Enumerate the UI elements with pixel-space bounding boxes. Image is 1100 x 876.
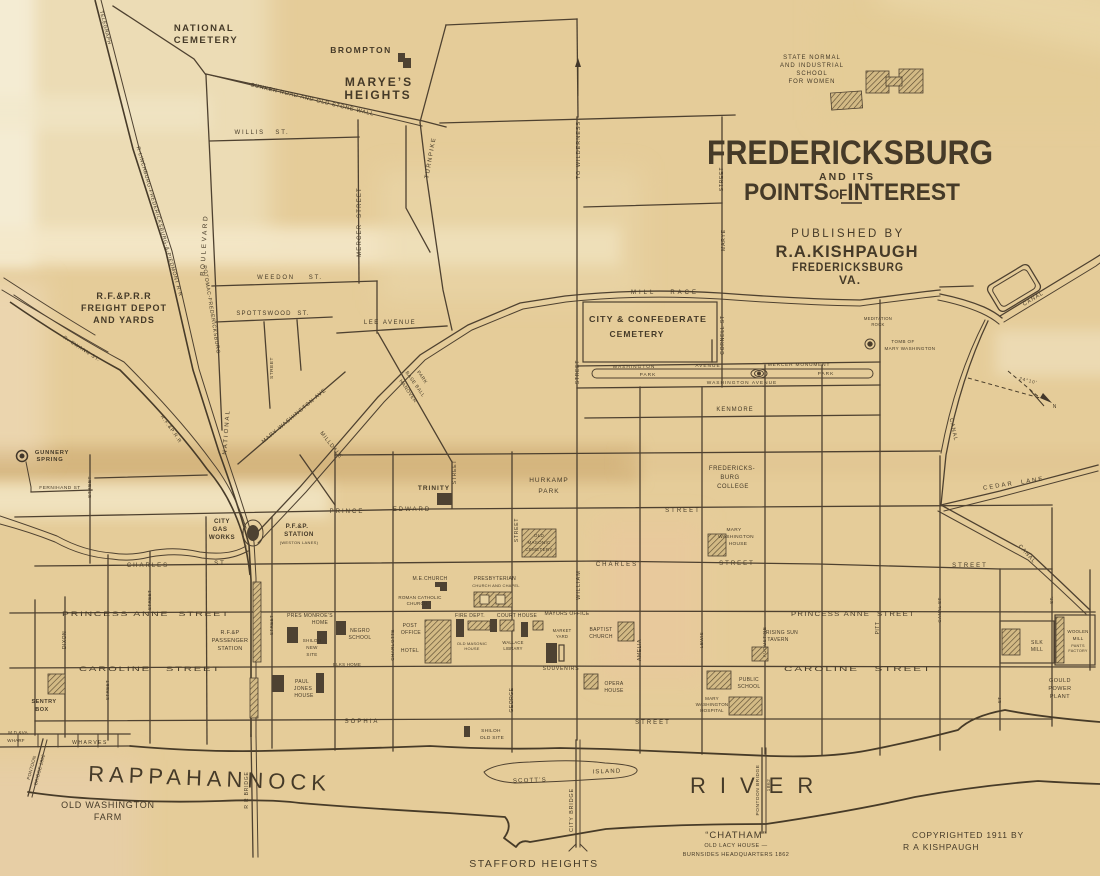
svg-text:HOUSE: HOUSE bbox=[464, 646, 479, 651]
svg-text:VA.: VA. bbox=[839, 273, 861, 287]
svg-text:STREET: STREET bbox=[952, 563, 988, 569]
svg-text:CHARLES: CHARLES bbox=[596, 562, 638, 568]
svg-text:MARYE’S: MARYE’S bbox=[345, 75, 413, 89]
svg-text:WALLACE: WALLACE bbox=[502, 640, 523, 645]
svg-text:WOOLEN: WOOLEN bbox=[1067, 629, 1088, 634]
svg-text:SHILOH: SHILOH bbox=[481, 728, 501, 734]
svg-text:ST: ST bbox=[214, 561, 226, 567]
svg-text:MAYORS OFFICE: MAYORS OFFICE bbox=[545, 611, 590, 617]
svg-text:R.F.&P.R.R: R.F.&P.R.R bbox=[96, 291, 151, 301]
svg-text:HOUSE: HOUSE bbox=[729, 541, 748, 547]
svg-text:MARY: MARY bbox=[705, 696, 719, 701]
svg-text:FREIGHT DEPOT: FREIGHT DEPOT bbox=[81, 303, 167, 313]
svg-text:AMELIA: AMELIA bbox=[637, 639, 643, 661]
svg-text:WILLIAM: WILLIAM bbox=[576, 570, 582, 600]
svg-text:MARY WASHINGTON: MARY WASHINGTON bbox=[885, 346, 936, 351]
svg-text:TRINITY: TRINITY bbox=[418, 485, 450, 492]
svg-text:MILL RACE: MILL RACE bbox=[631, 290, 699, 296]
svg-text:HOUSE: HOUSE bbox=[604, 688, 624, 694]
svg-text:FARM: FARM bbox=[94, 812, 122, 822]
svg-text:STATE NORMAL: STATE NORMAL bbox=[783, 55, 841, 61]
svg-text:NEW: NEW bbox=[306, 645, 318, 650]
svg-text:HOME: HOME bbox=[312, 620, 329, 626]
svg-text:BROMPTON: BROMPTON bbox=[330, 45, 391, 55]
svg-text:ST.: ST. bbox=[1049, 596, 1054, 604]
svg-text:MARYE: MARYE bbox=[721, 229, 727, 251]
svg-text:WASHINGTON: WASHINGTON bbox=[613, 364, 656, 370]
svg-text:POST: POST bbox=[403, 623, 418, 629]
svg-text:MILL: MILL bbox=[1073, 636, 1084, 641]
svg-text:CITY: CITY bbox=[214, 518, 230, 525]
svg-text:PRINCESS ANNE STREET: PRINCESS ANNE STREET bbox=[62, 612, 230, 618]
svg-text:SOUVENIRS: SOUVENIRS bbox=[543, 666, 580, 672]
svg-text:SITE: SITE bbox=[306, 652, 317, 657]
svg-text:KENMORE: KENMORE bbox=[716, 407, 753, 413]
svg-text:COLLEGE: COLLEGE bbox=[717, 484, 749, 490]
svg-text:(WESTON LANES): (WESTON LANES) bbox=[280, 540, 319, 545]
svg-text:FIRE DEPT.: FIRE DEPT. bbox=[455, 613, 485, 619]
svg-text:HOTEL: HOTEL bbox=[401, 648, 419, 654]
svg-text:ROMAN CATHOLIC: ROMAN CATHOLIC bbox=[398, 595, 442, 600]
svg-text:PRES MONROE’S: PRES MONROE’S bbox=[287, 613, 333, 619]
svg-text:PASSENGER: PASSENGER bbox=[212, 638, 249, 644]
svg-text:SCHOOL: SCHOOL bbox=[738, 684, 761, 690]
svg-text:CHARLES: CHARLES bbox=[127, 563, 169, 569]
svg-text:CHURCH: CHURCH bbox=[589, 634, 613, 640]
svg-text:RIVER: RIVER bbox=[690, 773, 827, 798]
svg-text:STREET: STREET bbox=[719, 561, 755, 567]
svg-text:OLD WASHINGTON: OLD WASHINGTON bbox=[61, 800, 155, 810]
svg-text:MILL: MILL bbox=[1031, 647, 1043, 653]
svg-text:BAPTIST: BAPTIST bbox=[590, 627, 613, 633]
svg-text:FACTORY: FACTORY bbox=[1068, 649, 1087, 653]
svg-text:SHILOH: SHILOH bbox=[303, 638, 322, 643]
svg-text:CAROLINE STREET: CAROLINE STREET bbox=[79, 667, 221, 673]
svg-text:MARKET: MARKET bbox=[553, 628, 572, 633]
svg-text:STREET: STREET bbox=[105, 680, 110, 700]
svg-text:SPRING: SPRING bbox=[36, 457, 63, 463]
svg-text:HEIGHTS: HEIGHTS bbox=[344, 88, 411, 102]
svg-text:STATION: STATION bbox=[284, 531, 314, 538]
svg-text:FERNIHAND ST: FERNIHAND ST bbox=[39, 485, 80, 491]
svg-text:CAROLINE STREET: CAROLINE STREET bbox=[784, 667, 932, 673]
svg-text:OLD: OLD bbox=[534, 533, 545, 538]
svg-text:STREET: STREET bbox=[452, 460, 458, 485]
svg-text:TO WILDERNESS: TO WILDERNESS bbox=[576, 121, 582, 179]
svg-text:OFFICE: OFFICE bbox=[401, 630, 421, 636]
svg-text:ST: ST bbox=[997, 697, 1002, 704]
svg-text:MEDITATION: MEDITATION bbox=[864, 316, 892, 321]
svg-text:NEGRO: NEGRO bbox=[350, 628, 370, 634]
svg-text:POINTSOFINTEREST: POINTSOFINTEREST bbox=[744, 179, 960, 206]
svg-text:N: N bbox=[1053, 404, 1058, 410]
svg-text:GUNNERY: GUNNERY bbox=[35, 450, 69, 456]
svg-text:STREET: STREET bbox=[575, 360, 581, 385]
svg-text:SENTRY: SENTRY bbox=[31, 699, 56, 705]
svg-text:JONES: JONES bbox=[294, 686, 313, 692]
svg-text:NATIONAL: NATIONAL bbox=[174, 23, 234, 34]
svg-text:P.F.&P.: P.F.&P. bbox=[286, 523, 309, 530]
svg-text:RISING SUN: RISING SUN bbox=[766, 630, 798, 636]
svg-text:OLD LACY HOUSE —: OLD LACY HOUSE — bbox=[704, 843, 767, 849]
svg-text:SCOTT’S: SCOTT’S bbox=[513, 777, 547, 784]
svg-text:CEMETERY: CEMETERY bbox=[174, 35, 238, 46]
svg-text:M.E.CHURCH: M.E.CHURCH bbox=[413, 576, 448, 582]
svg-text:STREET: STREET bbox=[147, 590, 152, 610]
svg-text:WHARVES: WHARVES bbox=[72, 740, 108, 746]
svg-text:HOSPITAL: HOSPITAL bbox=[700, 708, 724, 713]
svg-text:PRINCE: PRINCE bbox=[330, 509, 365, 515]
svg-text:WORKS: WORKS bbox=[209, 534, 235, 541]
svg-text:“CHATHAM”: “CHATHAM” bbox=[705, 830, 767, 841]
svg-text:PUBLIC: PUBLIC bbox=[739, 677, 759, 683]
svg-text:FOR WOMEN: FOR WOMEN bbox=[789, 79, 836, 85]
svg-text:PITT: PITT bbox=[875, 622, 881, 635]
svg-text:FREDERICKSBURG: FREDERICKSBURG bbox=[707, 134, 993, 172]
svg-text:ISLAND: ISLAND bbox=[592, 768, 621, 775]
svg-text:SPOTTSWOOD ST.: SPOTTSWOOD ST. bbox=[236, 311, 309, 317]
svg-text:LEWIS: LEWIS bbox=[699, 632, 704, 648]
svg-text:STREET: STREET bbox=[87, 476, 93, 498]
svg-text:OLD SITE: OLD SITE bbox=[480, 735, 504, 741]
svg-text:WILLIS ST.: WILLIS ST. bbox=[235, 130, 290, 136]
svg-text:WASHINGTON: WASHINGTON bbox=[718, 534, 754, 540]
svg-text:STAFFORD HEIGHTS: STAFFORD HEIGHTS bbox=[469, 858, 598, 870]
svg-text:SCHOOL: SCHOOL bbox=[796, 71, 827, 77]
svg-text:STREET: STREET bbox=[514, 518, 520, 543]
svg-text:WHARF: WHARF bbox=[7, 738, 25, 743]
svg-text:COPYRIGHTED 1911 BY: COPYRIGHTED 1911 BY bbox=[912, 830, 1024, 840]
svg-text:R.F.&P: R.F.&P bbox=[221, 630, 240, 636]
svg-text:SOPHIA: SOPHIA bbox=[345, 719, 380, 725]
svg-text:WASHINGTON AVENUE: WASHINGTON AVENUE bbox=[707, 380, 777, 386]
svg-text:BOX: BOX bbox=[35, 707, 48, 713]
svg-text:CEMETERY: CEMETERY bbox=[610, 329, 665, 339]
svg-text:CANAL ST: CANAL ST bbox=[937, 597, 942, 622]
svg-text:CEMETERY: CEMETERY bbox=[525, 547, 552, 552]
svg-text:PRINCESS ANNE STREET: PRINCESS ANNE STREET bbox=[791, 612, 915, 618]
svg-text:TOMB OF: TOMB OF bbox=[891, 339, 914, 344]
svg-text:LEE AVENUE: LEE AVENUE bbox=[364, 320, 416, 326]
svg-text:PARK: PARK bbox=[640, 372, 657, 378]
svg-text:SCHOOL: SCHOOL bbox=[349, 635, 372, 641]
svg-text:BURNSIDES HEADQUARTERS 1862: BURNSIDES HEADQUARTERS 1862 bbox=[683, 852, 790, 858]
svg-text:DIXON: DIXON bbox=[62, 631, 68, 649]
svg-text:BURG: BURG bbox=[720, 475, 739, 481]
svg-text:GAS: GAS bbox=[213, 526, 228, 533]
svg-text:AVENUE: AVENUE bbox=[695, 363, 720, 369]
svg-text:OPERA: OPERA bbox=[604, 681, 623, 687]
svg-text:GOULD: GOULD bbox=[1049, 678, 1071, 684]
svg-text:M.D.&VA: M.D.&VA bbox=[8, 730, 28, 735]
svg-text:COURT HOUSE: COURT HOUSE bbox=[497, 613, 538, 619]
svg-text:STREET: STREET bbox=[665, 508, 701, 514]
svg-text:AND YARDS: AND YARDS bbox=[93, 315, 155, 325]
svg-text:CHURCH AND CHAPEL: CHURCH AND CHAPEL bbox=[472, 583, 520, 588]
svg-text:CORNELL ST: CORNELL ST bbox=[720, 315, 726, 354]
svg-text:STREET: STREET bbox=[269, 615, 274, 635]
svg-text:PARK: PARK bbox=[538, 488, 559, 495]
svg-text:PARK: PARK bbox=[818, 371, 835, 377]
svg-text:WASHINGTON: WASHINGTON bbox=[696, 702, 729, 707]
svg-text:FREDERICKS-: FREDERICKS- bbox=[709, 466, 755, 472]
svg-text:EDWARD: EDWARD bbox=[393, 507, 431, 513]
svg-text:MASONIC: MASONIC bbox=[527, 540, 551, 545]
svg-text:AUGUSTINE: AUGUSTINE bbox=[762, 627, 767, 657]
svg-text:R A KISHPAUGH: R A KISHPAUGH bbox=[903, 842, 979, 852]
svg-text:PUBLISHED BY: PUBLISHED BY bbox=[791, 228, 905, 240]
svg-text:R.A.KISHPAUGH: R.A.KISHPAUGH bbox=[776, 242, 919, 261]
svg-text:PLANT: PLANT bbox=[1050, 694, 1070, 700]
svg-text:LIBRARY: LIBRARY bbox=[503, 646, 522, 651]
svg-text:HURKAMP: HURKAMP bbox=[529, 477, 569, 484]
svg-text:WEEDON ST.: WEEDON ST. bbox=[257, 275, 323, 281]
svg-text:GEORGE: GEORGE bbox=[509, 687, 515, 712]
svg-text:PANTS: PANTS bbox=[1071, 644, 1085, 648]
svg-text:STREET: STREET bbox=[269, 357, 275, 379]
svg-text:AND INDUSTRIAL: AND INDUSTRIAL bbox=[780, 63, 844, 69]
svg-text:CHURCH: CHURCH bbox=[407, 601, 428, 606]
svg-text:SILK: SILK bbox=[1031, 640, 1043, 646]
svg-text:STREET: STREET bbox=[635, 720, 671, 726]
svg-text:POWER: POWER bbox=[1048, 686, 1071, 692]
svg-text:PAUL: PAUL bbox=[295, 679, 309, 685]
svg-text:CITY & CONFEDERATE: CITY & CONFEDERATE bbox=[589, 314, 707, 324]
svg-text:ROCK: ROCK bbox=[871, 322, 884, 327]
svg-text:TAVERN: TAVERN bbox=[767, 637, 788, 643]
svg-text:CHARLOTTE: CHARLOTTE bbox=[390, 629, 395, 660]
svg-text:MERCER STREET: MERCER STREET bbox=[357, 187, 363, 257]
svg-text:MARY: MARY bbox=[727, 527, 742, 533]
svg-text:YARD: YARD bbox=[556, 634, 568, 639]
svg-text:PRESBYTERIAN: PRESBYTERIAN bbox=[474, 576, 516, 582]
svg-text:ELKS HOME: ELKS HOME bbox=[333, 662, 361, 667]
svg-text:MERCER MONUMENT: MERCER MONUMENT bbox=[768, 362, 830, 368]
svg-text:CITY BRIDGE: CITY BRIDGE bbox=[569, 788, 575, 832]
svg-text:STATION: STATION bbox=[217, 646, 242, 652]
svg-text:HOUSE: HOUSE bbox=[294, 693, 314, 699]
